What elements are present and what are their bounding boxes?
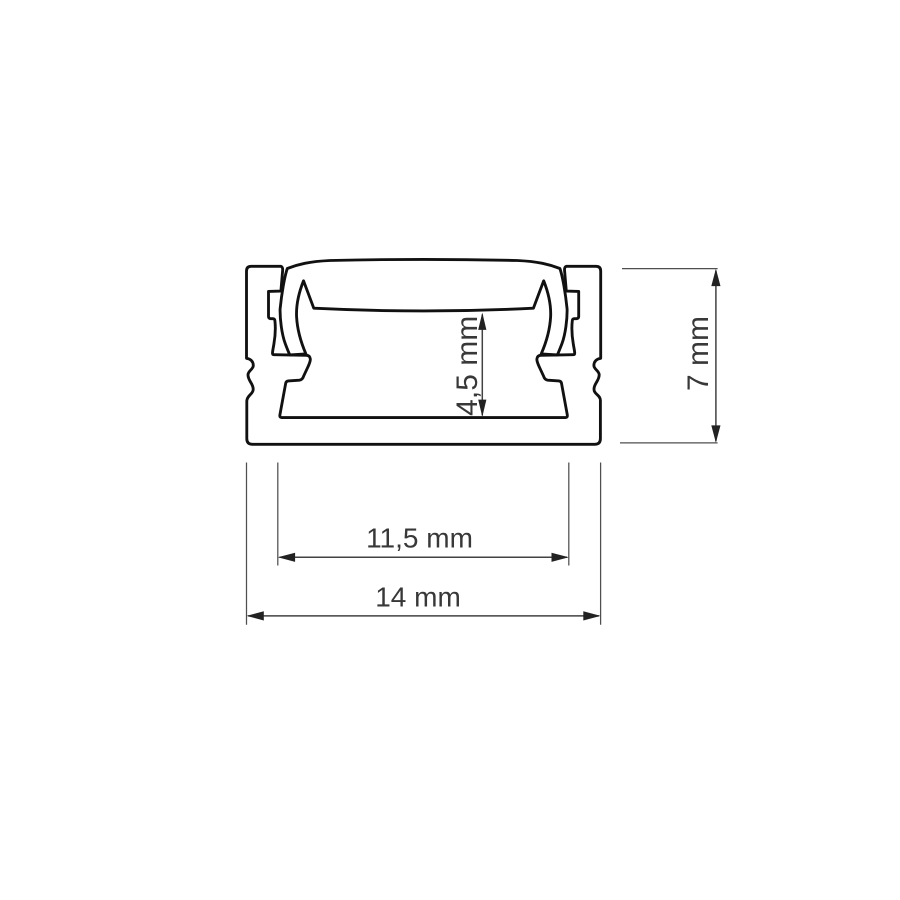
svg-text:11,5 mm: 11,5 mm [366,522,473,553]
svg-text:14 mm: 14 mm [375,582,461,613]
svg-text:4,5 mm: 4,5 mm [451,316,484,416]
svg-text:7 mm: 7 mm [682,316,715,391]
